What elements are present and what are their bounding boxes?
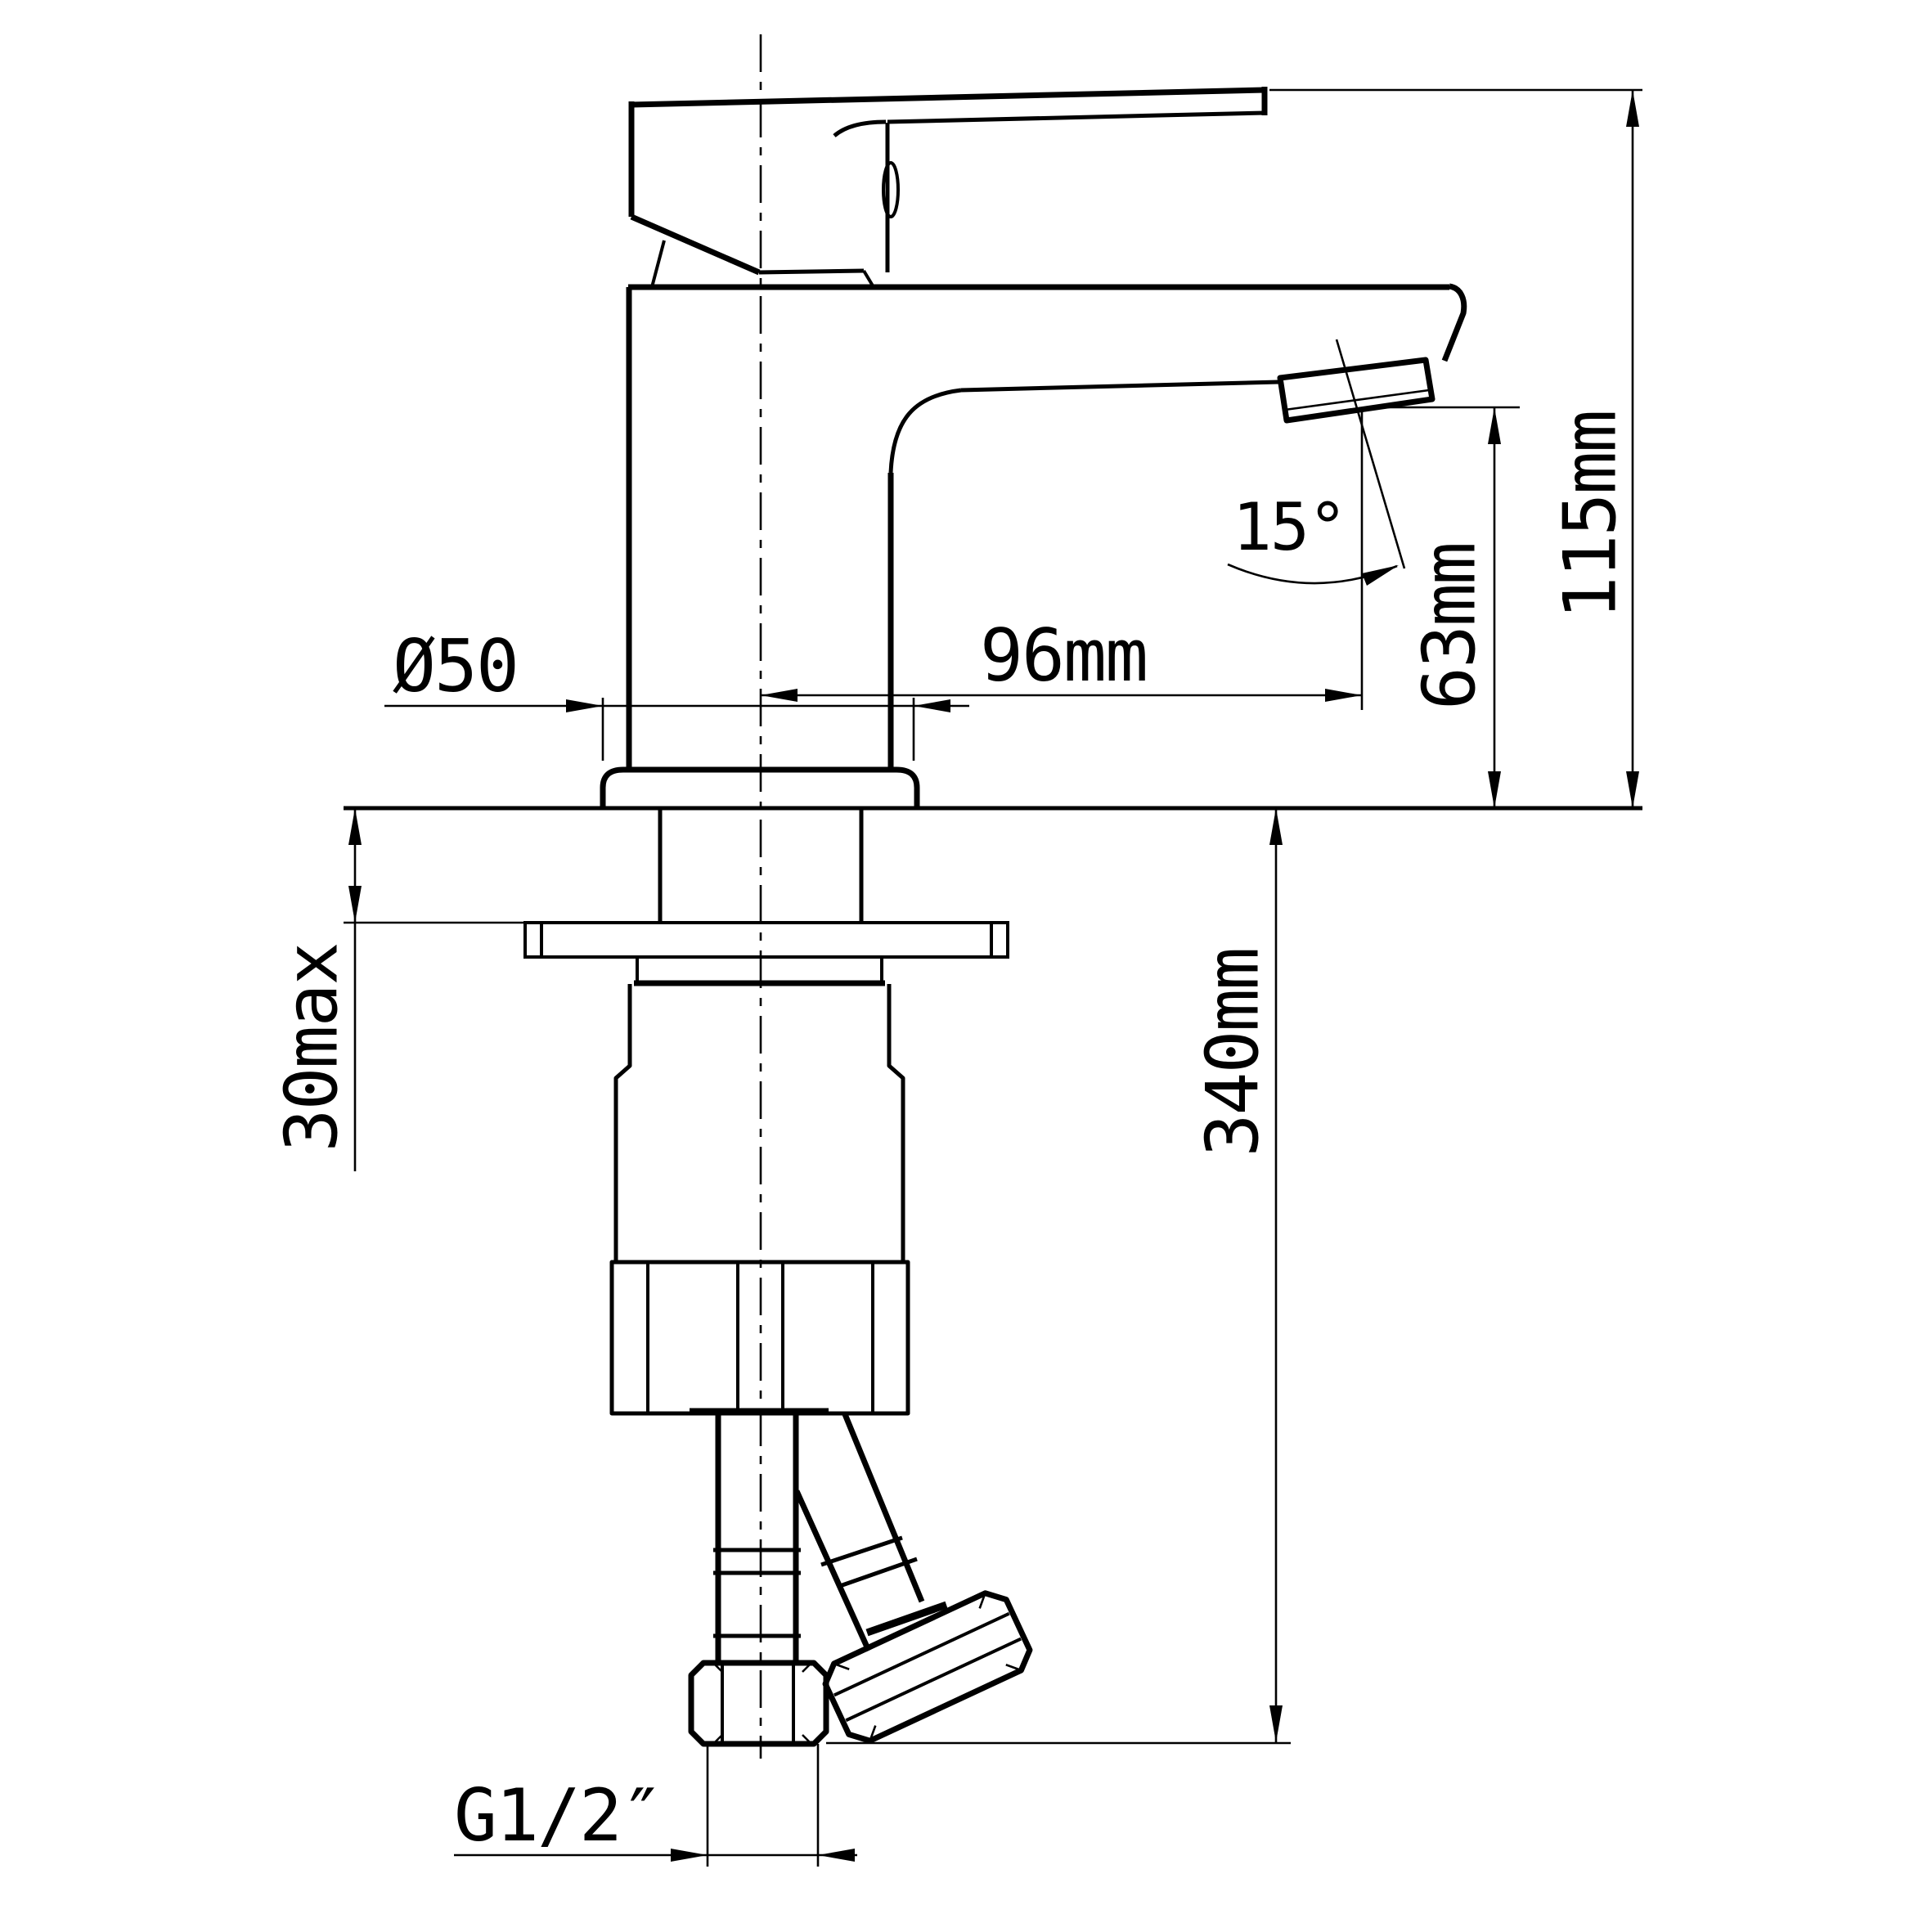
dim-base-diameter: Ø50	[384, 624, 969, 761]
dim-supply-length: 340mm	[1191, 808, 1283, 1742]
mounting-plate	[525, 923, 1008, 957]
handle-lever	[631, 87, 1265, 287]
dim-inlet-thread-label: G1/2″	[454, 1773, 663, 1858]
dim-deck-thickness: 30max	[270, 808, 524, 1171]
dim-supply-length-label: 340mm	[1191, 949, 1275, 1157]
dim-overall-height-label: 115mm	[1548, 411, 1633, 620]
supply-hose-braided	[797, 1414, 946, 1651]
dim-base-diameter-label: Ø50	[393, 624, 518, 708]
dim-inlet-thread: G1/2″	[454, 1744, 857, 1867]
dim-deck-thickness-label: 30max	[270, 944, 354, 1152]
dim-spout-reach-label: 96mm	[980, 613, 1147, 698]
mounting-collar	[634, 957, 885, 983]
dim-spout-angle-label: 15°	[1233, 489, 1346, 565]
dim-outlet-height: 63mm	[1368, 407, 1520, 808]
mounting-nut-body	[616, 984, 903, 1262]
hose-end-nut-left	[691, 1663, 826, 1744]
aerator-tip	[1280, 360, 1432, 420]
spout	[891, 286, 1464, 473]
dim-spout-angle: 15°	[1228, 339, 1404, 586]
technical-drawing-canvas: Ø50 96mm 15° 63mm 115mm 30max	[0, 0, 1932, 1932]
supply-hose-straight	[713, 1413, 801, 1663]
technical-drawing-page: Ø50 96mm 15° 63mm 115mm 30max	[0, 0, 1932, 1932]
dim-outlet-height-label: 63mm	[1408, 543, 1492, 710]
